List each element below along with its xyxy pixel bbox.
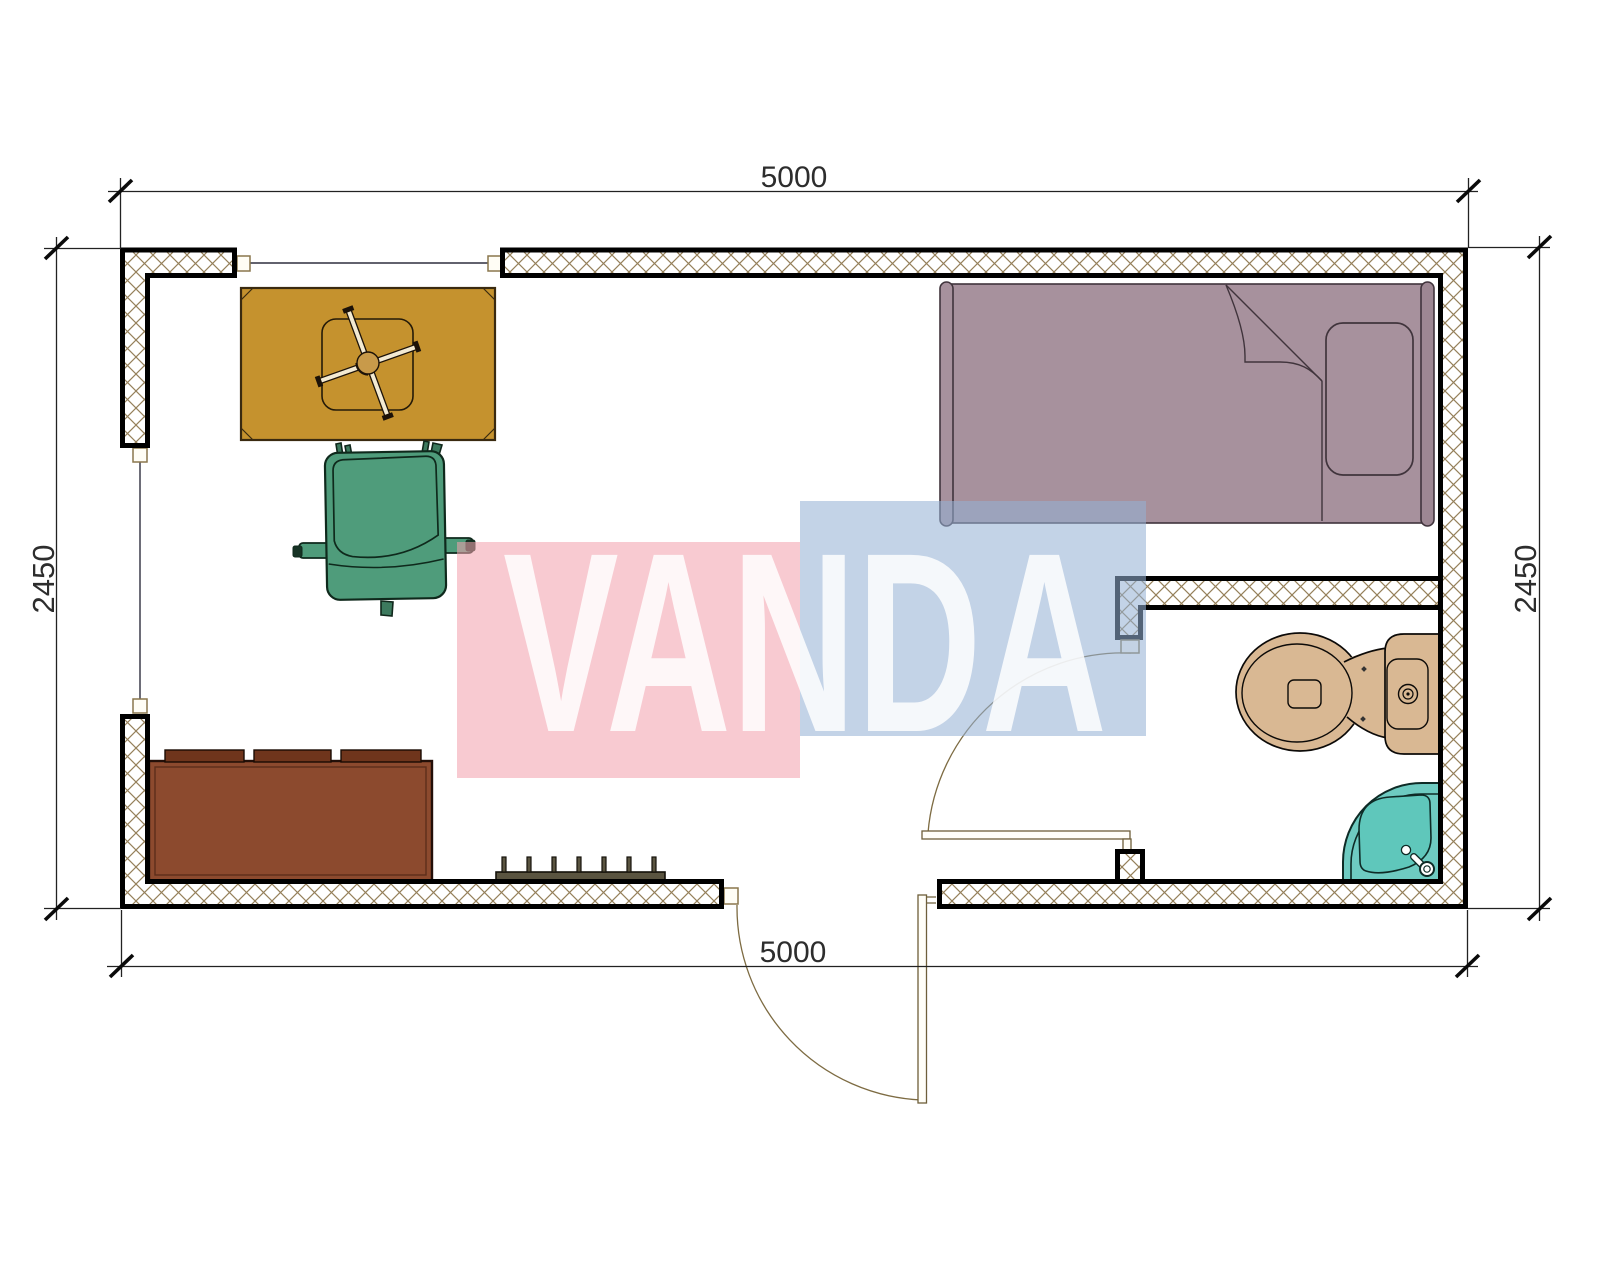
svg-text:VANDA: VANDA <box>503 500 1107 786</box>
svg-text:5000: 5000 <box>761 161 828 194</box>
svg-text:2450: 2450 <box>26 545 61 614</box>
svg-text:5000: 5000 <box>760 936 827 969</box>
svg-text:2450: 2450 <box>1508 545 1543 614</box>
